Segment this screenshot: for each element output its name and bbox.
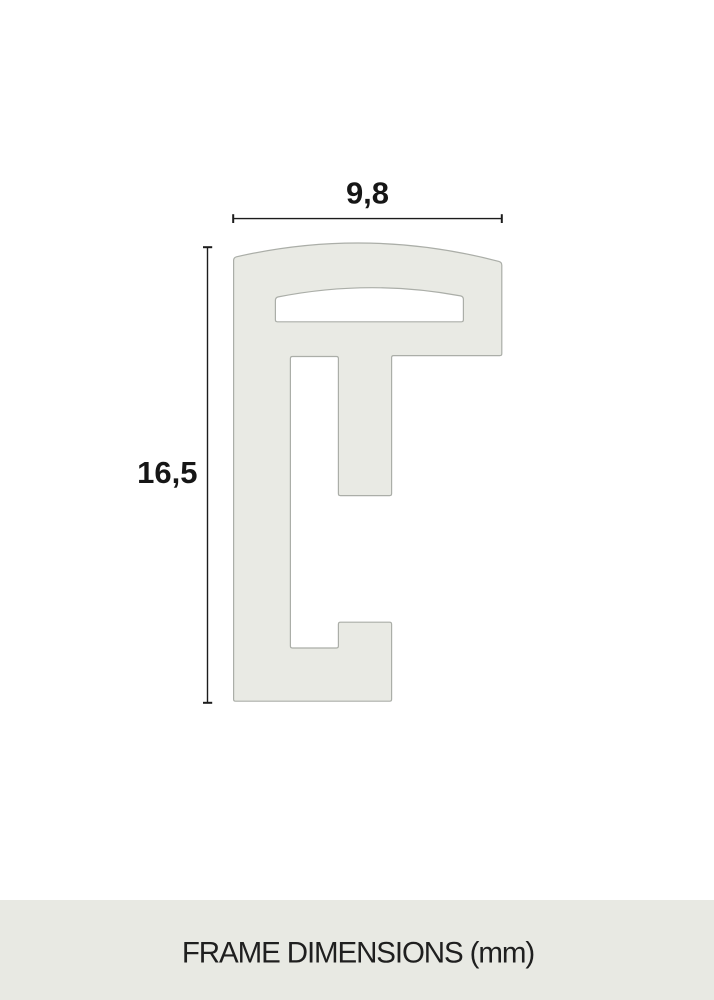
svg-text:FRAME DIMENSIONS (mm): FRAME DIMENSIONS (mm) — [182, 937, 534, 970]
svg-text:16,5: 16,5 — [137, 455, 197, 490]
svg-text:9,8: 9,8 — [346, 176, 389, 211]
